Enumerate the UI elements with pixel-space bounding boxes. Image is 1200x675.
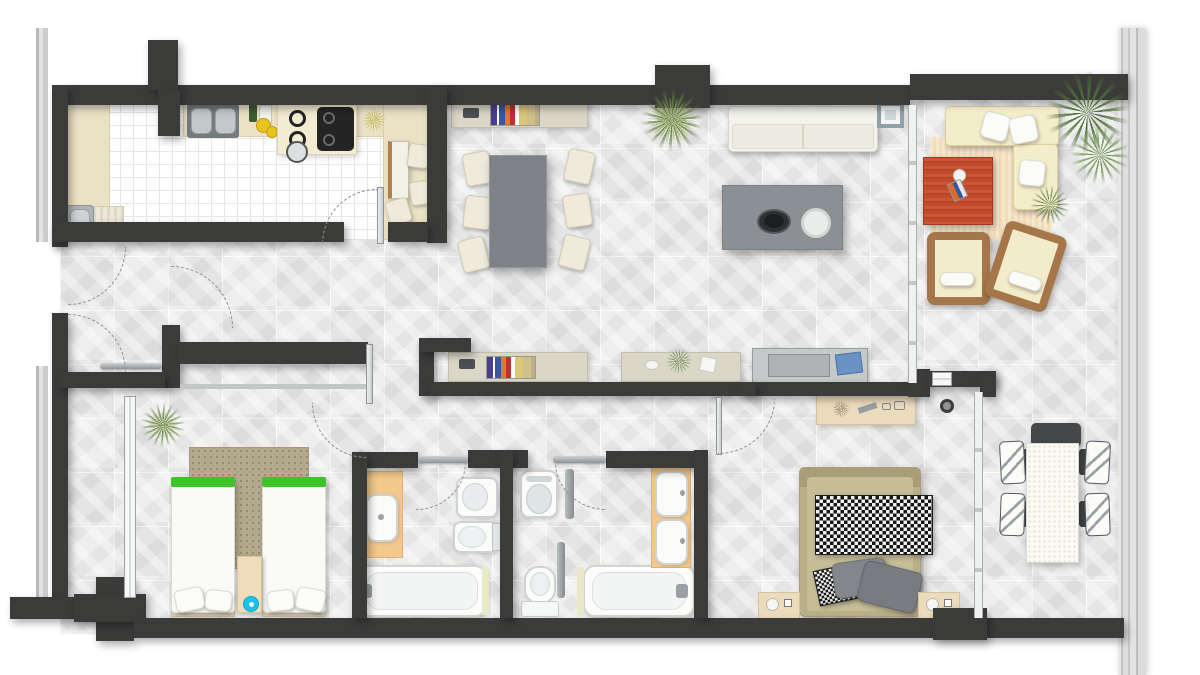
exterior-strip-top-left (36, 28, 48, 242)
bath2-faucet (676, 584, 688, 598)
dining-chair-right-2 (562, 192, 593, 228)
master-blanket (815, 495, 933, 555)
terrace-armchair-1 (927, 232, 990, 305)
terrace-plant-2 (1070, 125, 1130, 185)
decor-plant-small (666, 348, 692, 374)
glass-wall-bedroom-terrace (974, 392, 983, 618)
wall-top-main (64, 85, 910, 105)
bath1-sink-drain (378, 514, 384, 520)
floor-plan (0, 0, 1200, 675)
wall-corridor-kids (178, 342, 368, 364)
bath1-tub-inner (366, 572, 478, 610)
bath2-tub-strip (577, 567, 584, 615)
coffee-table-plate (801, 208, 831, 238)
bath1-bidet-bowl (462, 483, 488, 511)
nightstand-left-lamp (766, 598, 779, 611)
kids-door-leaf (366, 344, 373, 404)
terrace-cushion-3 (1018, 159, 1047, 188)
dining-sideboard-phone (463, 108, 479, 118)
kids-lamp-dot (249, 602, 254, 607)
wall-kitchen-right (427, 85, 447, 243)
outdoor-wire-chair-2 (999, 493, 1025, 537)
kids-bed-2-headboard (262, 477, 326, 487)
nightstand-left-switch (784, 599, 792, 607)
coffee-table-bowl-inner (764, 214, 784, 228)
decor-card (699, 356, 718, 374)
hall-sideboard-phone (459, 359, 475, 369)
stove-grill (317, 107, 354, 151)
bath2-radiator-2 (557, 542, 565, 598)
kitchen-door-leaf (377, 187, 384, 244)
stove-grill-burner-1 (323, 112, 335, 124)
bath2-toilet-bowl (526, 484, 552, 514)
wall-left-bottom (52, 390, 68, 602)
dining-sideboard-books (490, 104, 540, 126)
kids-foot-pillow-2 (204, 589, 233, 613)
dresser-decor-1 (882, 403, 891, 410)
outdoor-table (1026, 443, 1079, 563)
living-sofa-divider (802, 124, 804, 149)
exterior-strip-bottom-left (36, 366, 48, 606)
outdoor-wire-chair-3 (1084, 440, 1111, 484)
bath2-sink-2-drain (680, 538, 685, 544)
bath2-toilet-seat (526, 476, 552, 482)
wall-bath1-left (352, 452, 367, 618)
glass-wall-living-terrace (908, 105, 917, 383)
dining-table (489, 155, 547, 268)
bath1-tub-strip (482, 567, 489, 615)
kitchen-bottle (249, 104, 257, 122)
wall-bedroom-spur (740, 382, 756, 396)
bath2-bidet-inner (530, 572, 550, 596)
dresser-decor-star (832, 400, 850, 418)
wall-bath1-right (500, 450, 513, 618)
terrace-armchair-1-pillow (940, 272, 974, 286)
dining-plant-layer (648, 96, 696, 144)
master-nightstand-left (758, 592, 800, 619)
midwall-window (932, 372, 952, 386)
bath2-bidet-tank (521, 601, 559, 617)
kids-foot-pillow-3 (266, 588, 295, 612)
wall-mid-main (430, 382, 912, 396)
kids-plant-layer (148, 410, 178, 440)
outdoor-wire-chair-1 (999, 440, 1026, 484)
kids-window (124, 396, 136, 598)
kids-bed-1-headboard (171, 477, 235, 487)
bath2-tub-inner (592, 572, 686, 610)
wall-bath2-right (694, 450, 708, 618)
bath2-sink-1-drain (680, 490, 685, 496)
baseboard-line-kids (180, 384, 367, 389)
kitchen-pot (286, 141, 308, 163)
ceiling-speaker (940, 399, 954, 413)
dresser-decor-2 (894, 401, 905, 410)
wall-kitchen-bottom-left (52, 222, 344, 242)
kitchen-table (388, 141, 409, 199)
hall-sideboard-books-row (486, 356, 536, 379)
wall-spur-utility (158, 90, 180, 136)
counter-flower-plant (362, 108, 386, 132)
wall-bath2-top (606, 451, 698, 468)
wall-bath-mid-top (468, 450, 528, 468)
kitchen-sink-bowl-left (191, 108, 212, 134)
living-wall-frame-inner (885, 110, 896, 120)
stove-grill-burner-2 (323, 134, 335, 146)
tv-blue-item (835, 351, 863, 375)
wall-entry-mid (60, 372, 165, 388)
kitchen-sink-bowl-right (215, 108, 236, 134)
wall-mid-L-horizontal (419, 338, 471, 352)
wall-spur-top-left (148, 40, 178, 90)
stove-burner-1 (289, 110, 306, 127)
decor-bowl (645, 360, 659, 370)
outdoor-wire-chair-4 (1084, 493, 1110, 537)
nightstand-right-switch (944, 599, 952, 607)
terrace-plant-3 (1030, 185, 1070, 225)
terrace-cushion-2 (1007, 113, 1039, 145)
tv-screen (768, 354, 830, 377)
wall-kitchen-bottom-right (388, 222, 428, 242)
bath1-toilet-bowl (458, 526, 486, 548)
